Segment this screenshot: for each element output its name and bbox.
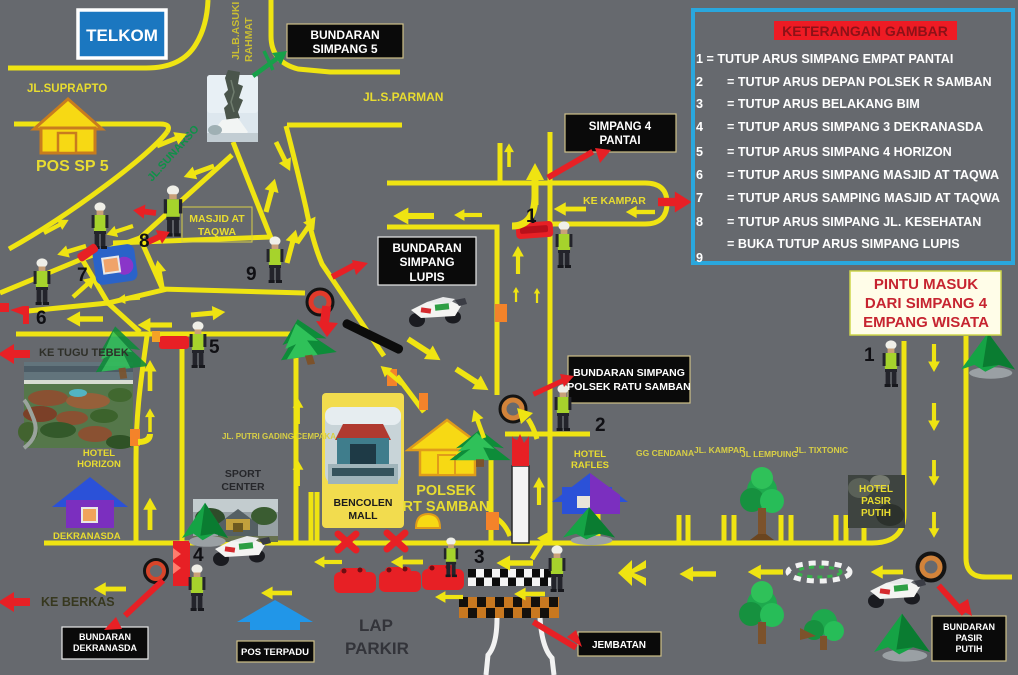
svg-text:TELKOM: TELKOM xyxy=(86,26,158,45)
svg-text:= TUTUP ARUS SIMPANG JL. KESE: = TUTUP ARUS SIMPANG JL. KESEHATAN xyxy=(727,215,981,229)
svg-text:KETERANGAN GAMBAR: KETERANGAN GAMBAR xyxy=(782,23,948,39)
svg-text:9: 9 xyxy=(696,251,703,265)
svg-text:POS TERPADU: POS TERPADU xyxy=(241,647,309,658)
svg-text:6: 6 xyxy=(36,308,47,329)
svg-text:JL.SUPRAPTO: JL.SUPRAPTO xyxy=(27,83,107,95)
svg-text:PASIR: PASIR xyxy=(861,496,892,507)
svg-text:= TUTUP ARUS SIMPANG 3 DEKRAN: = TUTUP ARUS SIMPANG 3 DEKRANASDA xyxy=(727,120,983,134)
svg-text:9: 9 xyxy=(246,264,257,285)
svg-text:1 = TUTUP ARUS SIMPANG EMPAT: 1 = TUTUP ARUS SIMPANG EMPAT PANTAI xyxy=(696,52,953,66)
svg-text:BUNDARAN SIMPANG: BUNDARAN SIMPANG xyxy=(573,367,685,379)
svg-text:JL. TIXTONIC: JL. TIXTONIC xyxy=(794,445,848,455)
svg-text:2: 2 xyxy=(696,75,703,89)
svg-text:JL. KAMPAR: JL. KAMPAR xyxy=(694,445,745,455)
svg-text:HOTEL: HOTEL xyxy=(859,484,893,495)
svg-text:2: 2 xyxy=(595,415,606,436)
svg-text:DARI SIMPANG 4: DARI SIMPANG 4 xyxy=(865,295,988,312)
svg-text:TAQWA: TAQWA xyxy=(198,226,237,238)
svg-text:1: 1 xyxy=(526,206,537,227)
svg-text:HOTEL: HOTEL xyxy=(83,448,115,459)
svg-text:POLSEK RATU SAMBAN: POLSEK RATU SAMBAN xyxy=(567,381,690,393)
svg-text:BENCOLEN: BENCOLEN xyxy=(334,497,393,509)
svg-text:JEMBATAN: JEMBATAN xyxy=(592,640,646,651)
svg-text:JL LEMPUING: JL LEMPUING xyxy=(741,449,798,459)
svg-text:1: 1 xyxy=(864,345,875,366)
svg-text:= BUKA TUTUP ARUS SIMPANG LUP: = BUKA TUTUP ARUS SIMPANG LUPIS xyxy=(727,237,960,251)
svg-text:= TUTUP ARUS DEPAN POLSEK R S: = TUTUP ARUS DEPAN POLSEK R SAMBAN xyxy=(727,75,992,89)
svg-text:RAHMAT: RAHMAT xyxy=(243,17,255,62)
svg-text:MASJID AT: MASJID AT xyxy=(189,213,245,225)
svg-text:3: 3 xyxy=(474,547,485,568)
svg-text:MALL: MALL xyxy=(348,510,378,522)
svg-text:JL. PUTRI GADING CEMPAKA: JL. PUTRI GADING CEMPAKA xyxy=(222,432,336,441)
svg-text:4: 4 xyxy=(696,120,703,134)
svg-text:GG CENDANA: GG CENDANA xyxy=(636,448,694,458)
svg-text:5: 5 xyxy=(696,145,703,159)
svg-text:7: 7 xyxy=(77,265,88,286)
svg-text:= TUTUP ARUS BELAKANG BIM: = TUTUP ARUS BELAKANG BIM xyxy=(727,97,920,111)
svg-text:5: 5 xyxy=(209,337,220,358)
svg-text:KE TUGU TEBEK: KE TUGU TEBEK xyxy=(39,347,129,359)
svg-text:LAP: LAP xyxy=(359,616,393,635)
svg-text:8: 8 xyxy=(139,231,150,252)
svg-text:DEKRANASDA: DEKRANASDA xyxy=(53,531,121,542)
svg-text:LUPIS: LUPIS xyxy=(409,270,444,284)
svg-text:KE KAMPAR: KE KAMPAR xyxy=(583,195,646,207)
svg-text:SIMPANG 5: SIMPANG 5 xyxy=(312,42,377,56)
svg-text:CENTER: CENTER xyxy=(221,481,265,493)
svg-text:PASIR: PASIR xyxy=(956,633,983,643)
svg-text:= TUTUP ARUS SIMPANG MASJID A: = TUTUP ARUS SIMPANG MASJID AT TAQWA xyxy=(727,168,999,182)
svg-text:JL.B.ASUKI: JL.B.ASUKI xyxy=(230,2,242,60)
svg-text:= TUTUP ARUS SAMPING MASJID A: = TUTUP ARUS SAMPING MASJID AT TAQWA xyxy=(727,191,1000,205)
svg-text:3: 3 xyxy=(696,97,703,111)
svg-text:PUTIH: PUTIH xyxy=(861,508,891,519)
svg-text:PANTAI: PANTAI xyxy=(599,135,640,147)
svg-text:SIMPANG: SIMPANG xyxy=(399,255,454,269)
svg-text:BUNDARAN: BUNDARAN xyxy=(79,632,131,642)
svg-text:BUNDARAN: BUNDARAN xyxy=(310,28,379,42)
svg-text:DEKRANASDA: DEKRANASDA xyxy=(73,643,138,653)
svg-text:BUNDARAN: BUNDARAN xyxy=(943,622,995,632)
svg-text:4: 4 xyxy=(193,545,204,566)
svg-text:PARKIR: PARKIR xyxy=(345,639,409,658)
svg-text:POS SP 5: POS SP 5 xyxy=(36,158,109,175)
svg-text:POLSEK: POLSEK xyxy=(416,483,476,499)
svg-text:HOTEL: HOTEL xyxy=(574,449,606,460)
svg-text:6: 6 xyxy=(696,168,703,182)
svg-text:8: 8 xyxy=(696,215,703,229)
svg-text:= TUTUP ARUS SIMPANG 4 HORIZ: = TUTUP ARUS SIMPANG 4 HORIZON xyxy=(727,145,952,159)
svg-text:EMPANG WISATA: EMPANG WISATA xyxy=(863,314,989,331)
svg-text:KE BERKAS: KE BERKAS xyxy=(41,595,115,609)
svg-text:SIMPANG 4: SIMPANG 4 xyxy=(589,121,652,133)
svg-text:PUTIH: PUTIH xyxy=(956,644,983,654)
svg-text:PINTU MASUK: PINTU MASUK xyxy=(874,276,978,293)
svg-text:RT SAMBAN: RT SAMBAN xyxy=(403,499,490,515)
svg-text:7: 7 xyxy=(696,191,703,205)
svg-text:RAFLES: RAFLES xyxy=(571,460,609,471)
svg-text:BUNDARAN: BUNDARAN xyxy=(392,241,461,255)
svg-text:HORIZON: HORIZON xyxy=(77,459,121,470)
svg-text:JL.S.PARMAN: JL.S.PARMAN xyxy=(363,90,443,104)
svg-text:SPORT: SPORT xyxy=(225,468,262,480)
